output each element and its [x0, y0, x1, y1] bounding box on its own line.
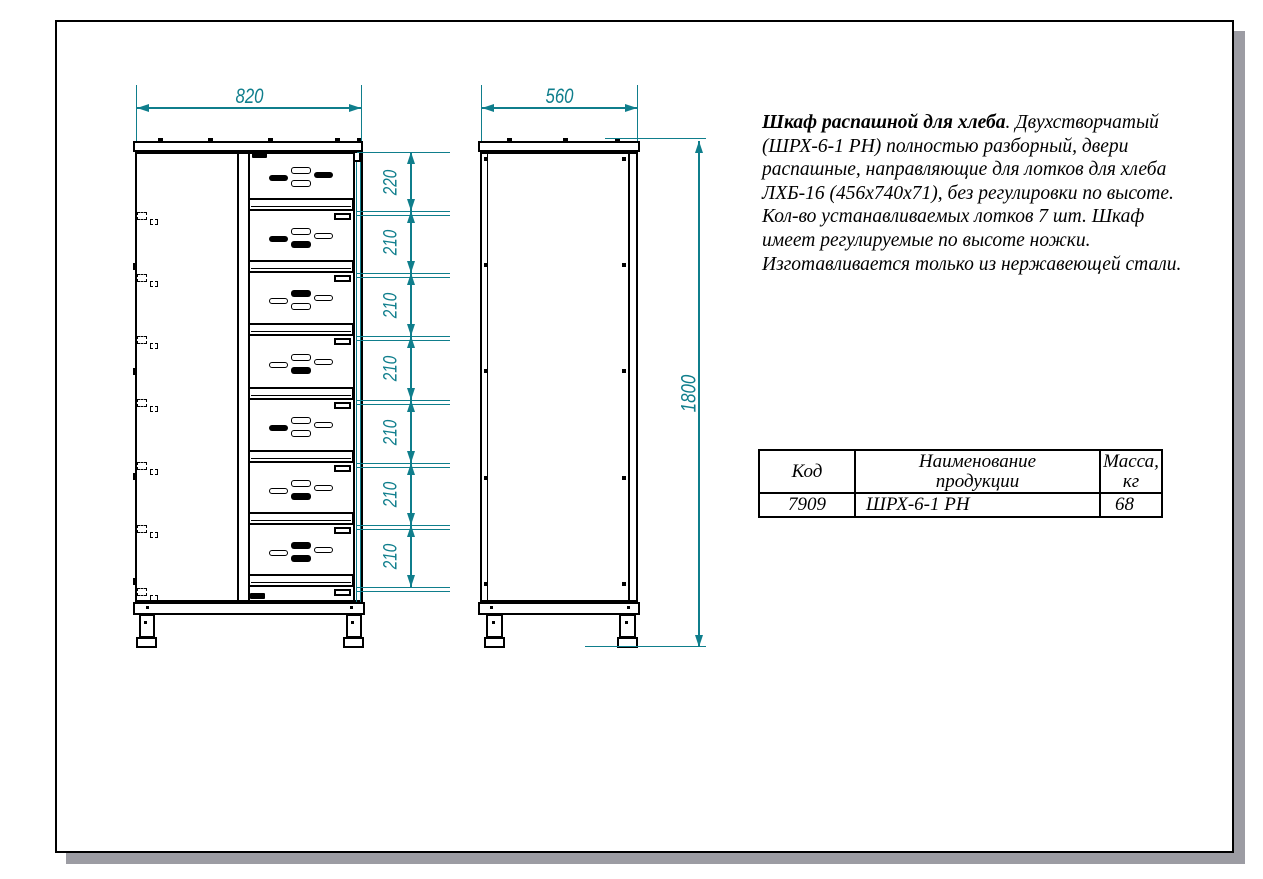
dim-width-side-label: 560 — [497, 86, 623, 107]
description-body: . Двухстворчатый (ШРХ-6-1 РН) полностью … — [762, 112, 1181, 275]
dim-extension-line — [357, 211, 450, 212]
dim-extension-line — [585, 646, 706, 647]
dim-extension-line — [637, 85, 638, 141]
dim-arrow-icon — [695, 635, 703, 647]
dim-arrow-icon — [695, 141, 703, 153]
dim-extension-line — [357, 525, 450, 526]
dim-arrow-icon — [407, 336, 415, 348]
dim-extension-line — [357, 340, 450, 341]
dim-chain-label: 210 — [381, 409, 402, 457]
dim-height-label: 1800 — [679, 372, 700, 415]
dim-arrow-icon — [407, 152, 415, 164]
product-table: Код Наименование продукции Масса, кг 790… — [758, 449, 1163, 518]
dim-arrow-icon — [407, 324, 415, 336]
dim-width-front-label: 820 — [159, 86, 341, 107]
dim-arrow-icon — [407, 199, 415, 211]
dim-extension-line — [357, 529, 450, 530]
dim-arrow-icon — [407, 451, 415, 463]
table-cell-mass: 68 — [1100, 493, 1162, 517]
dim-chain-label: 210 — [381, 533, 402, 581]
description-title: Шкаф распашной для хлеба — [762, 112, 1005, 133]
dim-extension-line — [357, 400, 450, 401]
dim-extension-line — [357, 463, 450, 464]
dim-chain-label: 210 — [381, 471, 402, 519]
table-header-code: Код — [759, 450, 855, 493]
dim-chain-label: 220 — [381, 159, 402, 207]
dim-extension-line — [357, 152, 450, 153]
table-header-mass: Масса, кг — [1100, 450, 1162, 493]
dim-extension-line — [357, 587, 450, 588]
dim-arrow-icon — [407, 400, 415, 412]
dim-arrow-icon — [407, 261, 415, 273]
dim-extension-line — [136, 85, 137, 141]
dim-arrow-icon — [407, 273, 415, 285]
dim-arrow-icon — [407, 211, 415, 223]
dim-extension-line — [357, 277, 450, 278]
dim-extension-line — [357, 404, 450, 405]
dim-chain-label: 210 — [381, 282, 402, 330]
table-cell-name: ШРХ-6-1 РН — [855, 493, 1100, 517]
dim-extension-line — [605, 138, 706, 139]
dim-arrow-icon — [349, 104, 361, 112]
dim-extension-line — [361, 85, 362, 141]
dim-extension-line — [357, 336, 450, 337]
product-description: Шкаф распашной для хлеба. Двухстворчатый… — [762, 111, 1198, 276]
dim-arrow-icon — [407, 513, 415, 525]
dim-chain-label: 210 — [381, 219, 402, 267]
dim-arrow-icon — [407, 525, 415, 537]
table-header-name: Наименование продукции — [855, 450, 1100, 493]
dim-extension-line — [357, 591, 450, 592]
dim-arrow-icon — [482, 104, 494, 112]
dim-chain-label: 210 — [381, 345, 402, 393]
dim-extension-line — [357, 467, 450, 468]
dim-arrow-icon — [407, 463, 415, 475]
dim-extension-line — [357, 215, 450, 216]
table-cell-code: 7909 — [759, 493, 855, 517]
dim-arrow-icon — [137, 104, 149, 112]
dim-arrow-icon — [407, 575, 415, 587]
dim-arrow-icon — [625, 104, 637, 112]
dim-extension-line — [481, 85, 482, 141]
dim-extension-line — [357, 273, 450, 274]
dim-arrow-icon — [407, 388, 415, 400]
drawing-canvas: 220210210210210210210 820 560 1800 Шкаф … — [0, 0, 1263, 879]
